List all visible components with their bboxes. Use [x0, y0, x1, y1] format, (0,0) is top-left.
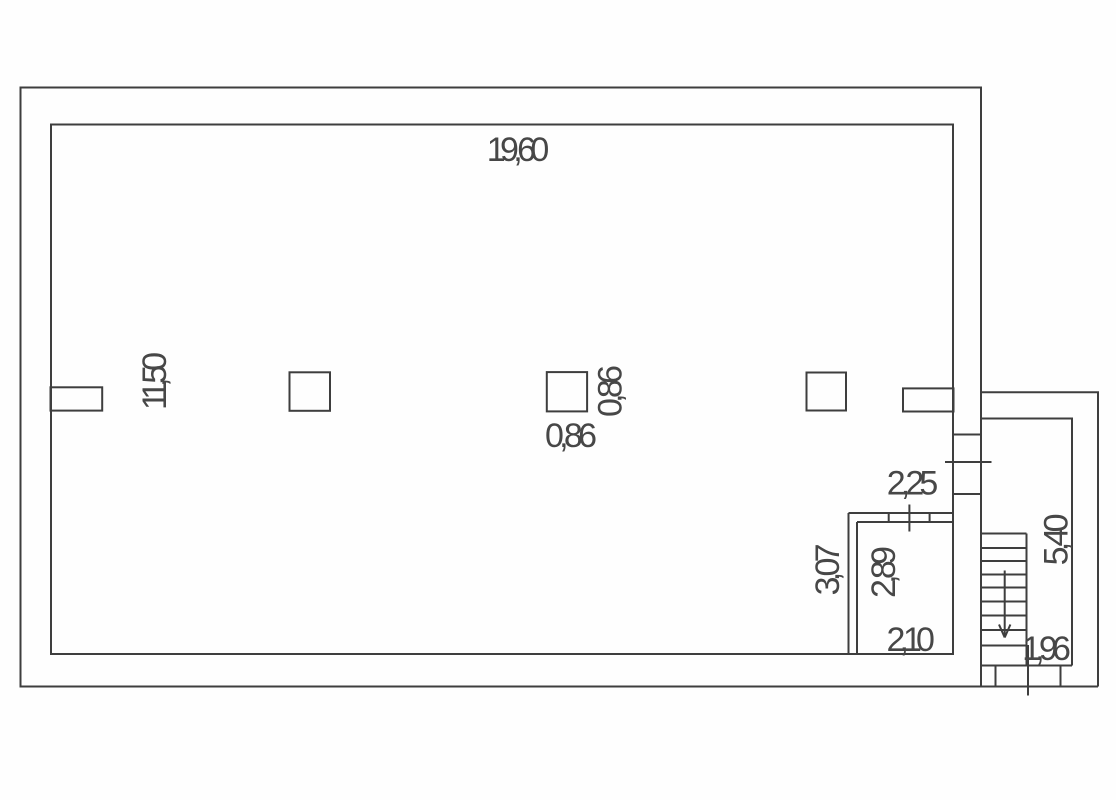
- svg-text:2,10: 2,10: [886, 621, 935, 659]
- svg-text:0,86: 0,86: [592, 365, 630, 417]
- svg-text:2,25: 2,25: [887, 465, 939, 503]
- svg-text:1,96: 1,96: [1022, 630, 1071, 668]
- svg-text:0,86: 0,86: [545, 417, 597, 455]
- svg-text:19,60: 19,60: [487, 131, 550, 169]
- svg-text:3,07: 3,07: [809, 543, 847, 595]
- svg-text:11,50: 11,50: [136, 352, 174, 410]
- svg-text:2,89: 2,89: [865, 546, 903, 598]
- svg-text:5,40: 5,40: [1038, 513, 1076, 565]
